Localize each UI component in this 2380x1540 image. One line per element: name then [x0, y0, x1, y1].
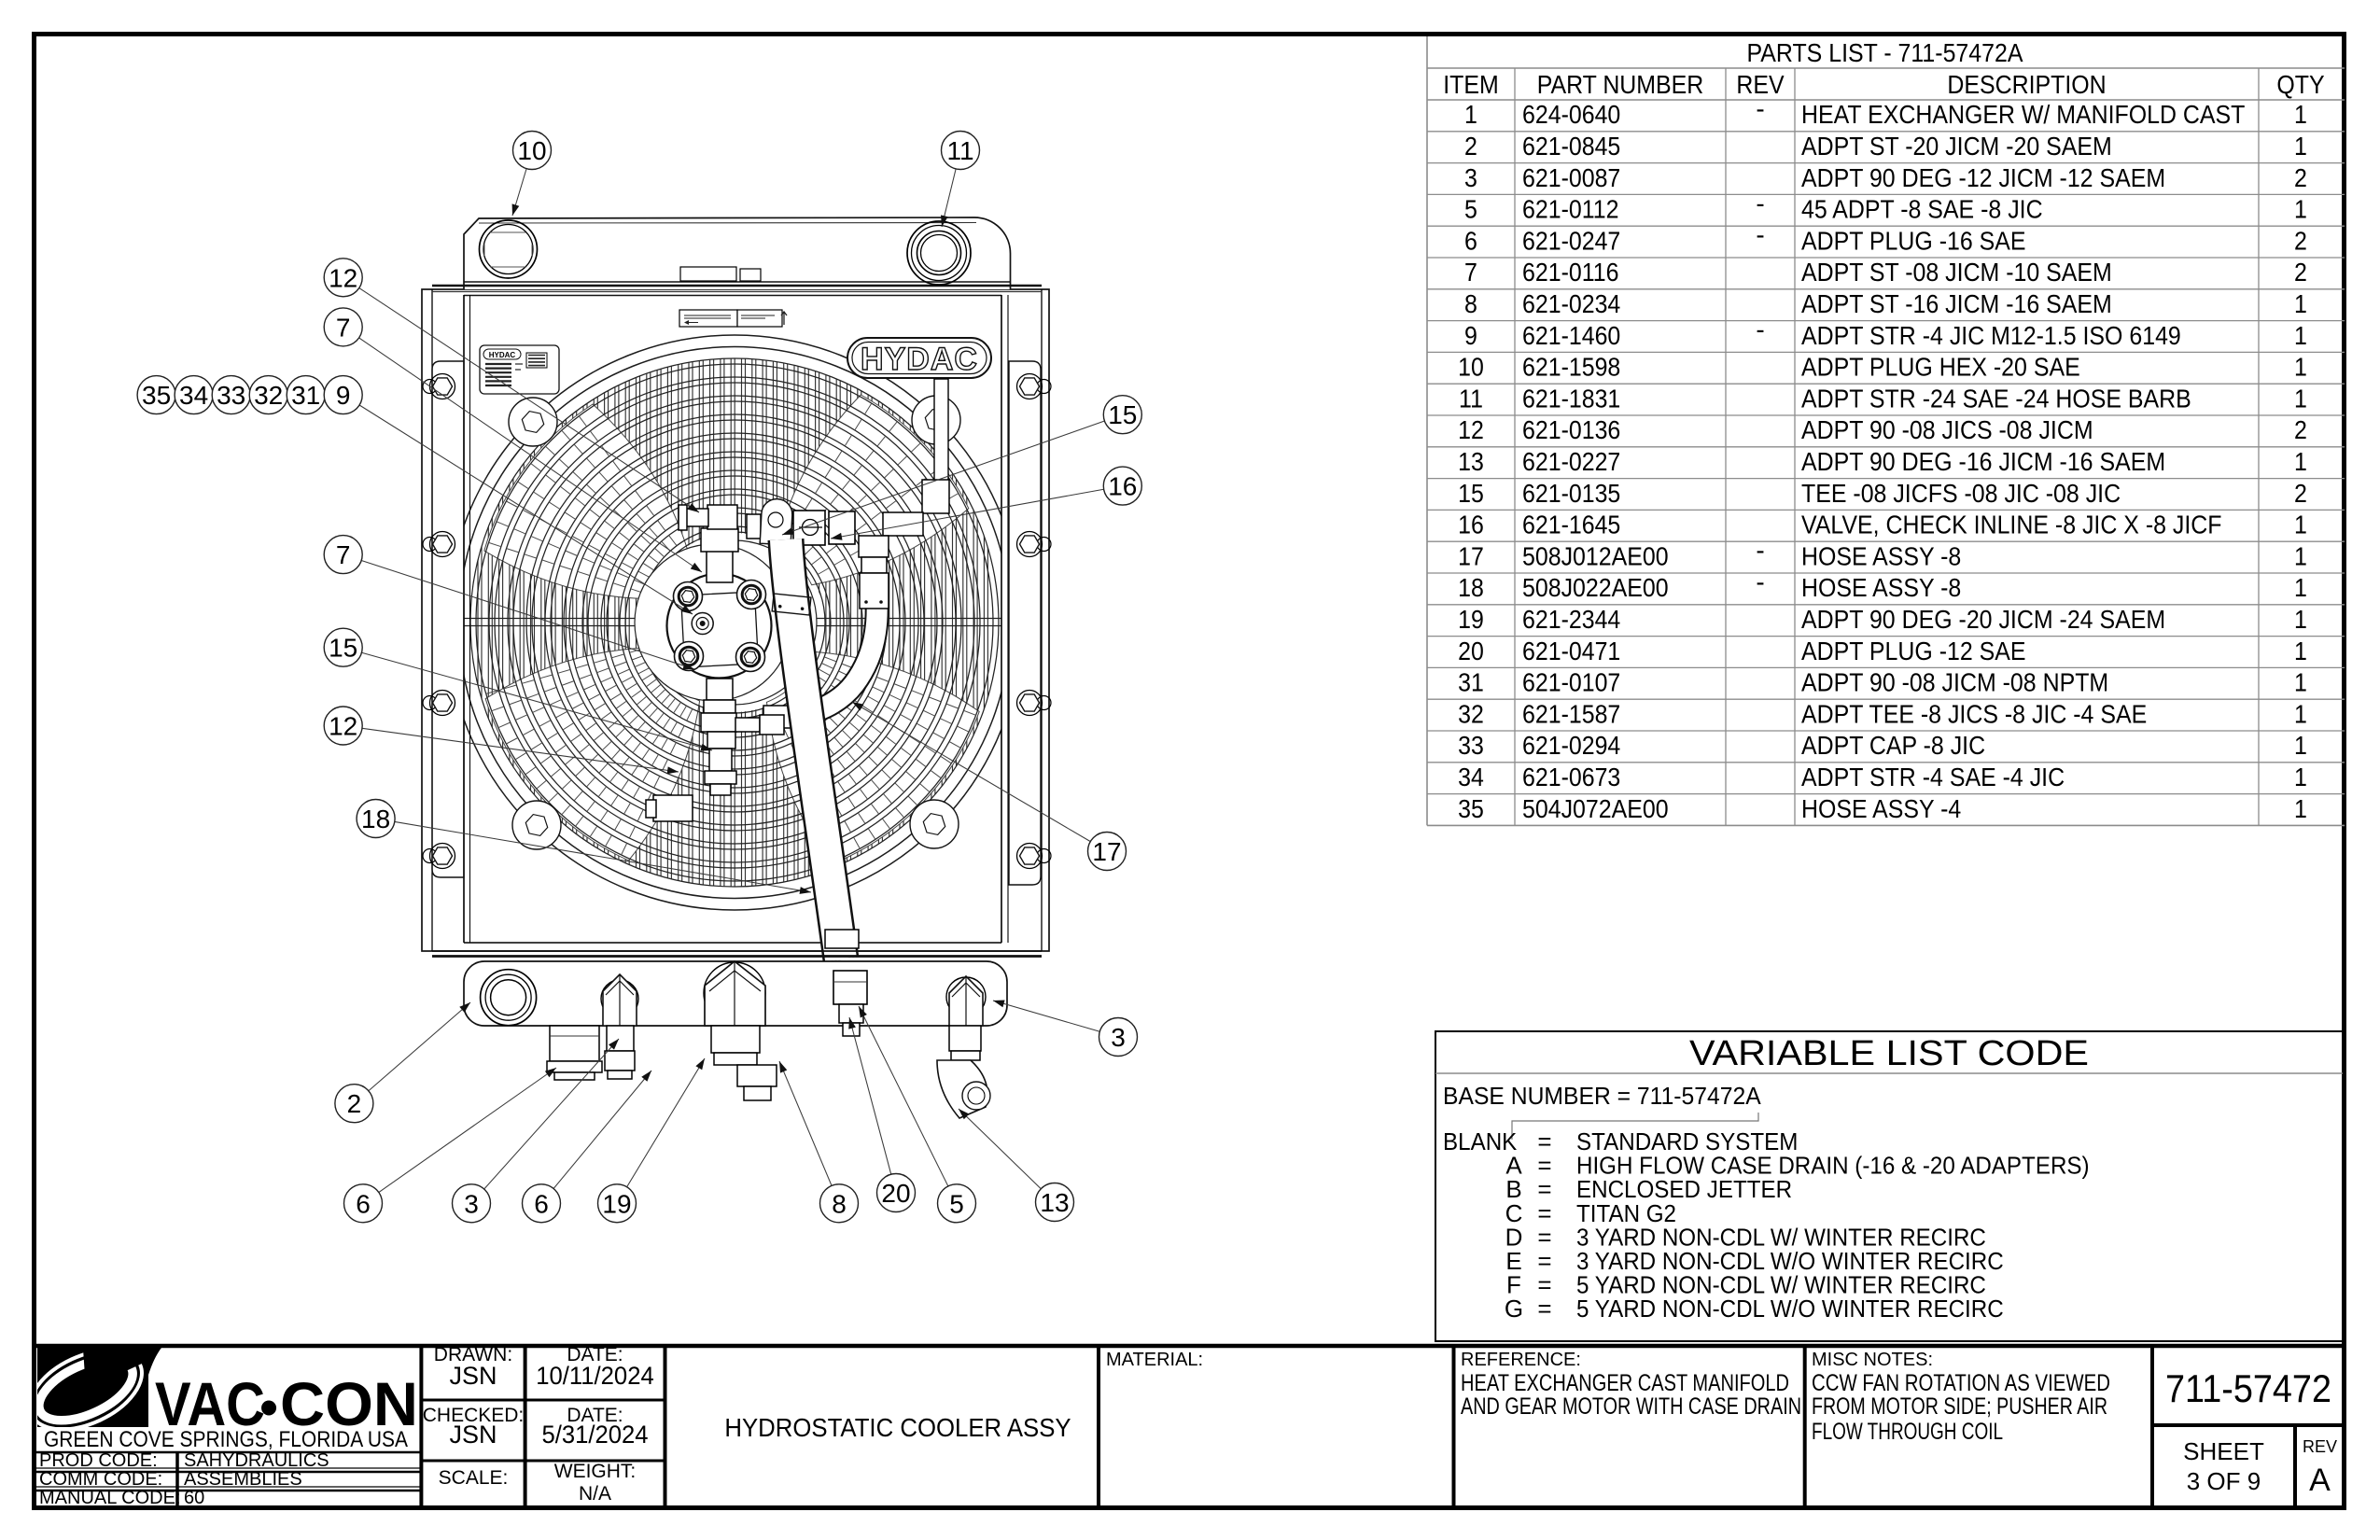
svg-text:60: 60: [184, 1488, 204, 1508]
svg-text:33: 33: [217, 381, 245, 410]
svg-text:5/31/2024: 5/31/2024: [541, 1421, 648, 1449]
svg-text:35: 35: [142, 381, 171, 410]
svg-text:ADPT 90 -08 JICM -08 NPTM: ADPT 90 -08 JICM -08 NPTM: [1801, 668, 2108, 697]
svg-text:621-0845: 621-0845: [1522, 132, 1620, 161]
svg-text:1: 1: [2294, 447, 2307, 476]
svg-text:REFERENCE:: REFERENCE:: [1461, 1350, 1581, 1370]
svg-text:3: 3: [1464, 163, 1477, 192]
svg-text:1: 1: [1464, 100, 1477, 129]
svg-text:10/11/2024: 10/11/2024: [536, 1362, 654, 1390]
svg-text:621-1587: 621-1587: [1522, 699, 1620, 728]
svg-text:5 YARD NON-CDL W/O WINTER RECI: 5 YARD NON-CDL W/O WINTER RECIRC: [1576, 1295, 2004, 1323]
svg-text:7: 7: [336, 540, 351, 569]
svg-text:621-0471: 621-0471: [1522, 637, 1620, 665]
svg-text:621-0116: 621-0116: [1522, 258, 1619, 287]
svg-text:6: 6: [356, 1189, 371, 1218]
svg-text:1: 1: [2294, 541, 2307, 570]
svg-text:19: 19: [602, 1189, 631, 1218]
svg-text:1: 1: [2294, 605, 2307, 634]
svg-text:PROD CODE:: PROD CODE:: [39, 1450, 158, 1471]
svg-text:1: 1: [2294, 511, 2307, 539]
svg-text:1: 1: [2294, 321, 2307, 350]
svg-text:7: 7: [1464, 258, 1477, 287]
svg-text:1: 1: [2294, 731, 2307, 760]
svg-text:-: -: [1756, 220, 1764, 249]
svg-text:JSN: JSN: [449, 1362, 497, 1390]
svg-text:PARTS LIST - 711-57472A: PARTS LIST - 711-57472A: [1747, 38, 2023, 67]
svg-text:1: 1: [2294, 195, 2307, 224]
svg-text:ITEM: ITEM: [1443, 70, 1499, 99]
svg-text:ADPT PLUG -16 SAE: ADPT PLUG -16 SAE: [1801, 226, 2026, 255]
svg-text:11: 11: [946, 136, 973, 165]
svg-text:621-2344: 621-2344: [1522, 605, 1620, 634]
svg-text:3: 3: [464, 1189, 479, 1218]
svg-text:12: 12: [329, 712, 357, 741]
svg-text:12: 12: [1458, 415, 1484, 444]
svg-text:508J012AE00: 508J012AE00: [1522, 541, 1669, 570]
svg-text:VALVE, CHECK INLINE -8 JIC X -: VALVE, CHECK INLINE -8 JIC X -8 JICF: [1801, 511, 2222, 539]
svg-text:2: 2: [2294, 415, 2307, 444]
svg-text:711-57472: 711-57472: [2165, 1366, 2331, 1410]
svg-text:624-0640: 624-0640: [1522, 100, 1620, 129]
svg-text:9: 9: [336, 381, 351, 410]
svg-text:5: 5: [949, 1189, 964, 1218]
svg-text:ADPT PLUG HEX -20 SAE: ADPT PLUG HEX -20 SAE: [1801, 353, 2080, 382]
svg-text:17: 17: [1458, 541, 1484, 570]
svg-text:34: 34: [179, 381, 208, 410]
svg-text:31: 31: [1458, 668, 1484, 697]
svg-text:504J072AE00: 504J072AE00: [1522, 794, 1669, 823]
svg-text:MATERIAL:: MATERIAL:: [1106, 1350, 1203, 1370]
svg-text:508J022AE00: 508J022AE00: [1522, 573, 1669, 602]
svg-text:ADPT PLUG -12 SAE: ADPT PLUG -12 SAE: [1801, 637, 2026, 665]
svg-text:16: 16: [1108, 472, 1137, 501]
svg-text:621-1831: 621-1831: [1522, 384, 1620, 413]
svg-text:JSN: JSN: [449, 1421, 497, 1449]
svg-text:621-0673: 621-0673: [1522, 763, 1620, 791]
svg-text:621-1645: 621-1645: [1522, 511, 1620, 539]
svg-text:32: 32: [1458, 699, 1484, 728]
svg-text:9: 9: [1464, 321, 1477, 350]
svg-text:10: 10: [1458, 353, 1484, 382]
svg-text:2: 2: [2294, 258, 2307, 287]
svg-text:BASE NUMBER = 711-57472A: BASE NUMBER = 711-57472A: [1443, 1082, 1761, 1110]
svg-text:HOSE ASSY -4: HOSE ASSY -4: [1801, 794, 1961, 823]
svg-text:33: 33: [1458, 731, 1484, 760]
svg-text:ADPT STR -4 SAE -4 JIC: ADPT STR -4 SAE -4 JIC: [1801, 763, 2065, 791]
svg-text:ADPT STR -4 JIC M12-1.5 ISO 61: ADPT STR -4 JIC M12-1.5 ISO 6149: [1801, 321, 2181, 350]
svg-text:20: 20: [1458, 637, 1484, 665]
svg-text:621-0087: 621-0087: [1522, 163, 1620, 192]
svg-text:17: 17: [1092, 837, 1121, 866]
svg-text:PART NUMBER: PART NUMBER: [1537, 70, 1704, 99]
svg-text:SCALE:: SCALE:: [439, 1467, 509, 1489]
svg-text:2: 2: [1464, 132, 1477, 161]
svg-text:12: 12: [329, 263, 357, 292]
svg-text:ADPT 90 DEG -16 JICM -16 SAEM: ADPT 90 DEG -16 JICM -16 SAEM: [1801, 447, 2165, 476]
svg-text:10: 10: [517, 136, 546, 165]
svg-text:FROM MOTOR SIDE; PUSHER AIR: FROM MOTOR SIDE; PUSHER AIR: [1812, 1393, 2107, 1420]
svg-text:TEE -08 JICFS -08 JIC -08 JIC: TEE -08 JICFS -08 JIC -08 JIC: [1801, 479, 2121, 508]
svg-text:2: 2: [2294, 226, 2307, 255]
svg-text:32: 32: [254, 381, 283, 410]
svg-text:SHEET: SHEET: [2183, 1437, 2264, 1465]
svg-text:621-0227: 621-0227: [1522, 447, 1620, 476]
svg-text:13: 13: [1040, 1188, 1069, 1217]
svg-text:621-0294: 621-0294: [1522, 731, 1620, 760]
svg-text:ADPT 90 DEG -20 JICM -24 SAEM: ADPT 90 DEG -20 JICM -24 SAEM: [1801, 605, 2165, 634]
svg-text:6: 6: [1464, 226, 1477, 255]
svg-text:2: 2: [2294, 479, 2307, 508]
svg-text:3: 3: [1111, 1023, 1126, 1052]
svg-text:ADPT 90 -08 JICS -08 JICM: ADPT 90 -08 JICS -08 JICM: [1801, 415, 2093, 444]
svg-text:11: 11: [1459, 384, 1483, 413]
svg-text:1: 1: [2294, 353, 2307, 382]
svg-text:18: 18: [361, 805, 390, 833]
svg-text:HEAT EXCHANGER W/ MANIFOLD CAS: HEAT EXCHANGER W/ MANIFOLD CAST: [1801, 100, 2245, 129]
svg-text:ADPT TEE -8 JICS -8 JIC -4 SAE: ADPT TEE -8 JICS -8 JIC -4 SAE: [1801, 699, 2147, 728]
svg-text:2: 2: [347, 1089, 362, 1118]
svg-text:ASSEMBLIES: ASSEMBLIES: [184, 1469, 302, 1490]
svg-text:QTY: QTY: [2276, 70, 2324, 99]
svg-text:31: 31: [291, 381, 320, 410]
svg-text:7: 7: [336, 313, 351, 342]
svg-text:ADPT ST -08 JICM -10 SAEM: ADPT ST -08 JICM -10 SAEM: [1801, 258, 2112, 287]
svg-text:SAHYDRAULICS: SAHYDRAULICS: [184, 1450, 329, 1471]
svg-text:621-1460: 621-1460: [1522, 321, 1620, 350]
svg-text:3 OF 9: 3 OF 9: [2187, 1467, 2261, 1495]
svg-text:621-0107: 621-0107: [1522, 668, 1620, 697]
svg-text:45 ADPT -8 SAE -8 JIC: 45 ADPT -8 SAE -8 JIC: [1801, 195, 2043, 224]
svg-text:1: 1: [2294, 668, 2307, 697]
svg-text:COMM CODE:: COMM CODE:: [39, 1469, 162, 1490]
svg-text:N/A: N/A: [579, 1483, 611, 1505]
svg-text:CCW FAN ROTATION AS VIEWED: CCW FAN ROTATION AS VIEWED: [1812, 1370, 2110, 1396]
svg-text:15: 15: [1108, 400, 1137, 429]
svg-text:REV: REV: [2303, 1437, 2337, 1456]
svg-text:HYDAC: HYDAC: [489, 351, 516, 359]
svg-text:AND GEAR MOTOR WITH CASE DRAIN: AND GEAR MOTOR WITH CASE DRAIN: [1461, 1393, 1801, 1420]
svg-text:HOSE ASSY -8: HOSE ASSY -8: [1801, 573, 1961, 602]
svg-text:DESCRIPTION: DESCRIPTION: [1947, 70, 2106, 99]
svg-text:-: -: [1756, 315, 1764, 344]
svg-text:1: 1: [2294, 573, 2307, 602]
svg-text:8: 8: [832, 1189, 847, 1218]
svg-text:A: A: [2309, 1463, 2331, 1498]
svg-text:-: -: [1756, 567, 1764, 596]
svg-text:15: 15: [329, 634, 357, 663]
svg-text:VARIABLE LIST CODE: VARIABLE LIST CODE: [1689, 1034, 2089, 1073]
svg-text:621-0135: 621-0135: [1522, 479, 1620, 508]
svg-text:1: 1: [2294, 699, 2307, 728]
svg-text:HYDAC: HYDAC: [861, 342, 978, 377]
svg-text:=: =: [1537, 1295, 1551, 1323]
svg-text:-: -: [1756, 536, 1764, 565]
svg-text:621-0247: 621-0247: [1522, 226, 1620, 255]
svg-text:19: 19: [1458, 605, 1484, 634]
svg-text:621-0136: 621-0136: [1522, 415, 1620, 444]
svg-text:2: 2: [2294, 163, 2307, 192]
svg-text:HYDROSTATIC COOLER ASSY: HYDROSTATIC COOLER ASSY: [724, 1413, 1071, 1442]
svg-text:621-0112: 621-0112: [1522, 195, 1619, 224]
svg-text:HOSE ASSY -8: HOSE ASSY -8: [1801, 541, 1961, 570]
svg-text:15: 15: [1458, 479, 1484, 508]
svg-text:ADPT ST -20 JICM -20 SAEM: ADPT ST -20 JICM -20 SAEM: [1801, 132, 2112, 161]
svg-text:G: G: [1505, 1295, 1523, 1323]
svg-text:ADPT ST -16 JICM -16 SAEM: ADPT ST -16 JICM -16 SAEM: [1801, 289, 2112, 318]
svg-text:35: 35: [1458, 794, 1484, 823]
svg-text:34: 34: [1458, 763, 1484, 791]
svg-text:MISC NOTES:: MISC NOTES:: [1812, 1350, 1933, 1370]
svg-text:ADPT CAP -8 JIC: ADPT CAP -8 JIC: [1801, 731, 1985, 760]
svg-text:8: 8: [1464, 289, 1477, 318]
svg-text:GREEN COVE SPRINGS, FLORIDA US: GREEN COVE SPRINGS, FLORIDA USA: [44, 1427, 409, 1452]
svg-text:621-1598: 621-1598: [1522, 353, 1620, 382]
svg-text:ADPT STR -24 SAE -24 HOSE BARB: ADPT STR -24 SAE -24 HOSE BARB: [1801, 384, 2191, 413]
svg-text:20: 20: [881, 1179, 910, 1208]
svg-text:18: 18: [1458, 573, 1484, 602]
svg-text:ADPT 90 DEG -12 JICM -12 SAEM: ADPT 90 DEG -12 JICM -12 SAEM: [1801, 163, 2165, 192]
svg-text:16: 16: [1458, 511, 1484, 539]
svg-text:MANUAL CODE:: MANUAL CODE:: [39, 1488, 181, 1508]
svg-text:13: 13: [1458, 447, 1484, 476]
svg-text:1: 1: [2294, 637, 2307, 665]
svg-text:-: -: [1756, 189, 1764, 217]
svg-text:1: 1: [2294, 794, 2307, 823]
svg-text:1: 1: [2294, 384, 2307, 413]
svg-text:5: 5: [1464, 195, 1477, 224]
svg-text:1: 1: [2294, 100, 2307, 129]
svg-text:1: 1: [2294, 763, 2307, 791]
svg-text:FLOW THROUGH COIL: FLOW THROUGH COIL: [1812, 1419, 2003, 1445]
svg-text:-: -: [1756, 94, 1764, 123]
svg-text:6: 6: [534, 1189, 549, 1218]
svg-text:WEIGHT:: WEIGHT:: [554, 1461, 637, 1482]
svg-text:HEAT EXCHANGER CAST MANIFOLD: HEAT EXCHANGER CAST MANIFOLD: [1461, 1370, 1789, 1396]
svg-text:1: 1: [2294, 132, 2307, 161]
svg-text:621-0234: 621-0234: [1522, 289, 1620, 318]
svg-text:1: 1: [2294, 289, 2307, 318]
